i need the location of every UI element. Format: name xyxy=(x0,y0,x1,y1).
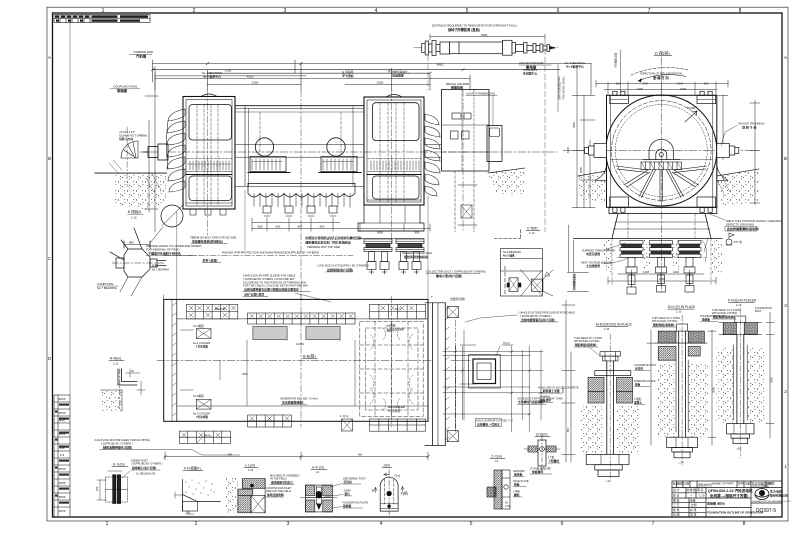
svg-text:3250: 3250 xyxy=(572,122,576,128)
svg-text:现场装配时机加工: 现场装配时机加工 xyxy=(271,481,294,485)
svg-text:冷却器中心: 冷却器中心 xyxy=(523,71,538,76)
svg-text:1: 1 xyxy=(784,464,787,469)
svg-text:电流互感器: 电流互感器 xyxy=(586,252,600,256)
svg-text:更改文件号: 更改文件号 xyxy=(698,483,712,487)
svg-text:集电小室(用户自理): 集电小室(用户自理) xyxy=(435,273,462,278)
svg-text:R-R(m): R-R(m) xyxy=(110,357,121,361)
svg-text:出线电缆预留孔(用户自理): 出线电缆预留孔(用户自理) xyxy=(521,317,555,322)
svg-text:随配焊接(现场焊): 随配焊接(现场焊) xyxy=(575,343,597,347)
svg-text:B4分: B4分 xyxy=(395,307,401,311)
svg-text:辅助油管预留孔(自理): 辅助油管预留孔(自理) xyxy=(103,445,132,450)
svg-text:支架螺栓,-4号枕木: 支架螺栓,-4号枕木 xyxy=(476,422,500,426)
svg-text:xxx: xxx xyxy=(59,446,64,450)
svg-text:1:10: 1:10 xyxy=(736,303,742,307)
svg-text:6: 6 xyxy=(557,8,560,14)
svg-text:随配焊接(现场焊): 随配焊接(现场焊) xyxy=(713,315,735,319)
svg-text:No.8轴承中心: No.8轴承中心 xyxy=(566,64,584,69)
svg-text:2: 2 xyxy=(193,8,196,14)
svg-text:6100: 6100 xyxy=(566,147,570,153)
svg-text:垫片: 垫片 xyxy=(345,492,351,496)
svg-text:600: 600 xyxy=(298,225,303,229)
svg-text:( SUPPLIED BY OTHERS ) COULD B: ( SUPPLIED BY OTHERS ) COULD BE SET xyxy=(243,277,295,281)
svg-text:No.1 COOLER: No.1 COOLER xyxy=(193,341,210,345)
svg-text:图号: 图号 xyxy=(767,482,773,486)
svg-text:No.7轴承中心: No.7轴承中心 xyxy=(203,74,221,79)
svg-text:R3100: R3100 xyxy=(687,106,696,110)
svg-text:L-L(m): L-L(m) xyxy=(245,464,255,468)
svg-text:PIT 坑: PIT 坑 xyxy=(734,240,742,244)
svg-text:A: A xyxy=(48,55,51,60)
svg-text:地基螺栓规格(现场配钻): 地基螺栓规格(现场配钻) xyxy=(192,238,223,243)
svg-text:风扇端部: 风扇端部 xyxy=(392,73,404,78)
svg-text:□24: □24 xyxy=(736,447,741,451)
svg-text:No.7 BEARING: No.7 BEARING xyxy=(152,269,169,272)
svg-text:B: B xyxy=(784,156,787,161)
svg-text:8: 8 xyxy=(743,521,746,527)
svg-text:E(前): E(前) xyxy=(152,264,158,268)
svg-text:支架螺栓与底板随配: 支架螺栓与底板随配 xyxy=(517,400,543,404)
svg-text:No.4相模: No.4相模 xyxy=(193,324,204,328)
svg-text:抽转子所需距离 (直抽): 抽转子所需距离 (直抽) xyxy=(447,27,480,32)
svg-text:№5 COOLER: №5 COOLER xyxy=(388,405,405,409)
svg-text:□ 24: □ 24 xyxy=(678,461,684,465)
svg-text:垫板: 垫板 xyxy=(635,382,641,386)
svg-text:审 定: 审 定 xyxy=(697,488,704,492)
svg-text:P-P(分) IN PLACED: P-P(分) IN PLACED xyxy=(728,298,757,303)
svg-text:2200 HZ: 2200 HZ xyxy=(484,92,495,96)
svg-text:1:10: 1:10 xyxy=(604,327,610,331)
svg-text:4: 4 xyxy=(375,8,378,14)
svg-text:7: 7 xyxy=(652,521,655,527)
svg-text:40: 40 xyxy=(131,369,134,373)
svg-text:COLLECTOR DUCT ( SUPPLIED BY O: COLLECTOR DUCT ( SUPPLIED BY OTHERS) xyxy=(426,270,486,274)
svg-text:D: D xyxy=(48,356,52,361)
svg-text:3: 3 xyxy=(287,521,290,527)
svg-text:C R(#): C R(#) xyxy=(527,227,538,231)
svg-text:2: 2 xyxy=(784,389,787,394)
svg-text:250: 250 xyxy=(95,486,99,491)
svg-text:第 张: 第 张 xyxy=(690,513,697,517)
svg-text:H-K (m): H-K (m) xyxy=(312,466,324,470)
svg-text:1 级配: 1 级配 xyxy=(634,397,642,401)
svg-text:垫板螺母: 垫板螺母 xyxy=(532,470,543,474)
svg-text:K- E(m): K- E(m) xyxy=(113,463,125,467)
svg-text:M-M (DECKS) IN PLACE: M-M (DECKS) IN PLACE xyxy=(596,323,632,327)
svg-text:接地端子(用户自理): 接地端子(用户自理) xyxy=(132,466,156,470)
svg-text:1340: 1340 xyxy=(677,82,683,86)
svg-text:M20螺孔深度: M20螺孔深度 xyxy=(614,52,618,67)
svg-text:共 张: 共 张 xyxy=(690,508,697,512)
svg-text:№6相模: №6相模 xyxy=(386,324,396,328)
svg-text:二期混凝土浇灌: 二期混凝土浇灌 xyxy=(540,389,560,393)
svg-text:No.6相模: No.6相模 xyxy=(193,394,204,398)
svg-text:TERMINAL BOX TOP SIDE: TERMINAL BOX TOP SIDE xyxy=(307,245,340,249)
svg-text:C(m): C(m) xyxy=(394,474,400,478)
svg-text:F-F(视图K): F-F(视图K) xyxy=(184,466,201,471)
svg-text:标记: 标记 xyxy=(59,417,66,422)
svg-text:2000: 2000 xyxy=(712,387,716,393)
svg-text:5号冷却器: 5号冷却器 xyxy=(388,409,400,413)
svg-text:B46: B46 xyxy=(243,372,248,376)
svg-text:B4(7): B4(7) xyxy=(387,329,394,333)
svg-text:1 J(m): 1 J(m) xyxy=(340,414,349,418)
svg-text:DONGFANG ELECTRIC MACHINERY CO: DONGFANG ELECTRIC MACHINERY CO.,LTD xyxy=(752,500,791,503)
svg-text:2: 2 xyxy=(195,521,198,527)
svg-text:DISTANCE REQUIRED TO REMOVE RO: DISTANCE REQUIRED TO REMOVE ROTOR (STRAI… xyxy=(432,24,517,28)
svg-text:No.5 BEARING: No.5 BEARING xyxy=(503,250,521,254)
svg-text:工 艺: 工 艺 xyxy=(673,503,680,507)
svg-text:集电端: 集电端 xyxy=(525,65,537,70)
svg-text:8: 8 xyxy=(739,8,742,14)
svg-text:顶 转 子 用: 顶 转 子 用 xyxy=(742,125,757,130)
svg-text:7900: 7900 xyxy=(481,33,488,37)
svg-text:LIGHT STONE: LIGHT STONE xyxy=(466,92,485,96)
svg-text:C-C(m): C-C(m) xyxy=(491,455,502,459)
svg-text:安装图 (积分): 安装图 (积分) xyxy=(707,501,725,506)
svg-text:主出线套管: 主出线套管 xyxy=(586,264,600,268)
svg-text:刷握组装: 刷握组装 xyxy=(450,85,463,90)
svg-text:J(m): J(m) xyxy=(383,464,390,468)
svg-text:1:10: 1:10 xyxy=(248,468,254,472)
svg-text:B: B xyxy=(48,156,51,161)
svg-text:1900: 1900 xyxy=(680,87,686,91)
svg-text:1340: 1340 xyxy=(642,82,648,86)
svg-text:接地板: 接地板 xyxy=(514,472,523,476)
svg-text:下端盖开孔抽转子用吊孔: 下端盖开孔抽转子用吊孔 xyxy=(148,251,181,256)
svg-text:吊转子所需高度9100: 吊转子所需高度9100 xyxy=(557,76,561,100)
svg-text:(用户自理)-推荐: (用户自理)-推荐 xyxy=(244,291,264,296)
svg-text:1218: 1218 xyxy=(673,270,679,274)
svg-text:3: 3 xyxy=(784,303,787,308)
svg-text:□ 24: □ 24 xyxy=(605,479,611,483)
svg-text:2x 180x20(3x7)6: 2x 180x20(3x7)6 xyxy=(136,472,156,476)
svg-text:吊转子方向: 吊转子方向 xyxy=(119,137,133,141)
svg-text:xxxx: xxxx xyxy=(59,509,66,513)
svg-text:批 准: 批 准 xyxy=(673,508,680,512)
svg-text:x x: x x xyxy=(60,453,65,457)
svg-text:DQ397-5: DQ397-5 xyxy=(756,508,777,514)
svg-text:混凝土: 混凝土 xyxy=(634,401,642,405)
svg-text:随配焊接(现场焊): 随配焊接(现场焊) xyxy=(653,323,675,327)
svg-text:4520: 4520 xyxy=(247,75,254,79)
svg-text:校 对: 校 对 xyxy=(673,494,680,498)
svg-text:No.3 COOLER: No.3 COOLER xyxy=(193,412,210,416)
svg-text:出线罩—(基础尺寸布置): 出线罩—(基础尺寸布置) xyxy=(710,493,749,498)
svg-text:1218: 1218 xyxy=(643,270,649,274)
svg-text:螺栓: 螺栓 xyxy=(514,493,520,497)
svg-text:X(m): X(m) xyxy=(503,341,510,345)
svg-text:2-4HCS DIA 304 PIPE SLEEV FOR: 2-4HCS DIA 304 PIPE SLEEV FOR OIL PIPING xyxy=(95,438,150,442)
svg-text:审 核: 审 核 xyxy=(673,499,680,503)
svg-text:2436: 2436 xyxy=(659,277,665,281)
svg-text:发电机键槽(随配): 发电机键槽(随配) xyxy=(281,401,304,405)
svg-text:1:10: 1:10 xyxy=(699,494,705,498)
svg-text:出线电缆预留孔位置可根据出线盒位置而定: 出线电缆预留孔位置可根据出线盒位置而定 xyxy=(244,287,299,292)
svg-text:重量: 重量 xyxy=(690,499,696,503)
svg-text:WORKING PLATE: WORKING PLATE xyxy=(634,379,656,383)
svg-text:ACCORDING TO THE POSITION OF T: ACCORDING TO THE POSITION OF TERMINAL BO… xyxy=(243,280,307,284)
svg-text:xxxx: xxxx xyxy=(59,481,66,485)
svg-text:L3: L3 xyxy=(495,459,498,463)
svg-text:2260: 2260 xyxy=(377,81,384,85)
svg-text:900: 900 xyxy=(704,82,709,86)
svg-text:6: 6 xyxy=(561,521,564,527)
svg-text:K(视): K(视) xyxy=(401,491,408,496)
svg-text:40: 40 xyxy=(505,501,508,505)
svg-text:密封风挡发电机用: 密封风挡发电机用 xyxy=(403,254,428,259)
svg-text:1:10: 1:10 xyxy=(131,216,137,220)
svg-text:D 视(前): D 视(前) xyxy=(655,50,670,56)
svg-text:7: 7 xyxy=(648,8,651,14)
svg-text:xxxx: xxxx xyxy=(59,397,66,401)
svg-text:xxxx: xxxx xyxy=(59,467,66,471)
svg-text:出线母线(用户自理): 出线母线(用户自理) xyxy=(327,267,353,272)
svg-text:3: 3 xyxy=(284,8,287,14)
svg-text:1:10: 1:10 xyxy=(113,362,119,366)
svg-text:RAILING FOR PROTECTION AND MAI: RAILING FOR PROTECTION AND MAINTENANCE(S… xyxy=(222,251,319,255)
svg-text:比例: 比例 xyxy=(691,503,697,507)
svg-text:2850: 2850 xyxy=(579,167,583,173)
svg-text:设 计: 设 计 xyxy=(673,488,680,492)
svg-text:(供需双方现场配钻铰孔后用铰制孔螺栓连接): (供需双方现场配钻铰孔后用铰制孔螺栓连接) xyxy=(305,235,362,240)
svg-text:2260: 2260 xyxy=(252,81,259,85)
svg-text:3号冷却器: 3号冷却器 xyxy=(196,415,208,419)
svg-text:(螺栓螺母由发电机厂供货 现场配钻): (螺栓螺母由发电机厂供货 现场配钻) xyxy=(305,240,351,245)
svg-text:xxxx: xxxx xyxy=(59,411,66,415)
svg-text:A: A xyxy=(784,55,787,60)
svg-text:1: 1 xyxy=(102,8,105,14)
svg-text:1 WHOLE OUTSIDE PIPE SLEEVE FO: 1 WHOLE OUTSIDE PIPE SLEEVE FOR CABLE xyxy=(518,311,575,315)
svg-text:8M: 8M xyxy=(358,453,363,457)
svg-text:B 视图(#): B 视图(#) xyxy=(128,209,141,214)
svg-text:8M: 8M xyxy=(228,453,233,457)
svg-text:日期: 日期 xyxy=(745,482,751,486)
svg-text:600: 600 xyxy=(258,225,263,229)
svg-text:C: C xyxy=(48,256,52,261)
svg-text:1600: 1600 xyxy=(561,387,565,393)
svg-text:汽机端: 汽机端 xyxy=(136,54,147,59)
svg-text:分区: 分区 xyxy=(684,482,690,486)
svg-text:基础板: 基础板 xyxy=(702,317,710,321)
svg-text:励 磁 方 向: 励 磁 方 向 xyxy=(652,75,668,80)
svg-text:600: 600 xyxy=(320,225,325,229)
svg-text:COLLECTOR END: COLLECTOR END xyxy=(519,61,544,65)
svg-text:4: 4 xyxy=(380,521,383,527)
svg-text:3300: 3300 xyxy=(225,69,232,73)
svg-text:9882: 9882 xyxy=(437,63,444,67)
svg-text:850: 850 xyxy=(566,427,570,432)
svg-text:1:50: 1:50 xyxy=(505,504,511,508)
svg-text:BOLT: BOLT xyxy=(755,309,762,313)
svg-text:标准化: 标准化 xyxy=(687,488,696,492)
svg-text:现场连续角焊: 现场连续角焊 xyxy=(267,493,284,497)
svg-text:Bx4中(8): Bx4中(8) xyxy=(215,307,225,311)
svg-text:900: 900 xyxy=(616,82,621,86)
svg-text:xxxx: xxxx xyxy=(59,495,66,499)
svg-text:DIRECTION OF FIELD ROTATION: DIRECTION OF FIELD ROTATION xyxy=(640,71,682,75)
svg-text:N-N (分) IN PLACE: N-N (分) IN PLACE xyxy=(668,304,695,309)
svg-text:1:10: 1:10 xyxy=(529,231,535,235)
svg-text:xxxx: xxxx xyxy=(59,432,66,436)
svg-text:CONCRETE POST: CONCRETE POST xyxy=(634,363,657,367)
svg-text:1: 1 xyxy=(106,521,109,527)
svg-text:定子中心: 定子中心 xyxy=(341,73,354,78)
svg-text:T: T xyxy=(431,295,433,299)
svg-text:890: 890 xyxy=(129,241,134,245)
svg-text:定位柱: 定位柱 xyxy=(343,480,353,484)
svg-text:股份有限公司: 股份有限公司 xyxy=(770,493,788,498)
svg-text:1800: 1800 xyxy=(770,377,774,383)
svg-text:5: 5 xyxy=(466,8,469,14)
svg-text:1号冷却器: 1号冷却器 xyxy=(196,345,208,349)
svg-text:T形螺栓: T形螺栓 xyxy=(549,459,559,463)
svg-text:COUPLING FACE: COUPLING FACE xyxy=(113,85,137,89)
svg-text:L3: L3 xyxy=(316,470,319,474)
svg-text:1900: 1900 xyxy=(637,87,643,91)
svg-text:B-B(前): B-B(前) xyxy=(303,354,316,359)
svg-text:1:10: 1:10 xyxy=(676,309,682,313)
svg-text:签字: 签字 xyxy=(738,482,744,486)
svg-text:No.7 BEARING: No.7 BEARING xyxy=(97,286,118,290)
svg-text:(TO CRANE HOOK): (TO CRANE HOOK) xyxy=(563,77,566,100)
svg-text:坑内側壁线基准: 坑内側壁线基准 xyxy=(572,273,576,290)
svg-text:5-M4CS DIA 304 PIPE SLEEVE FOR: 5-M4CS DIA 304 PIPE SLEEVE FOR CABLE xyxy=(243,274,296,278)
svg-text:Q-Q(m): Q-Q(m) xyxy=(536,433,548,437)
svg-text:DEFECTS (GROUND): DEFECTS (GROUND) xyxy=(726,223,754,227)
svg-text:此处焊缝需满焊(现场焊): 此处焊缝需满焊(现场焊) xyxy=(727,226,759,231)
svg-text:NAME OF PART: NAME OF PART xyxy=(712,482,734,486)
svg-text:TURBINE END: TURBINE END xyxy=(133,50,154,54)
svg-text:✓: ✓ xyxy=(690,494,692,498)
svg-text:定位柱: 定位柱 xyxy=(634,366,643,370)
svg-text:日 期: 日 期 xyxy=(673,513,680,517)
svg-text:栏杆 (自理): 栏杆 (自理) xyxy=(203,258,218,263)
svg-text:垫板: 垫板 xyxy=(514,482,520,486)
svg-text:基础板: 基础板 xyxy=(342,504,352,508)
svg-text:处数: 处数 xyxy=(678,482,684,486)
svg-text:出线罩(剖视): 出线罩(剖视) xyxy=(450,297,465,301)
svg-text:No.5 轴承: No.5 轴承 xyxy=(503,254,515,258)
svg-text:300: 300 xyxy=(186,512,191,515)
svg-text:QFSN-600-2-22 汽轮发电机: QFSN-600-2-22 汽轮发电机 xyxy=(708,488,753,493)
svg-text:10160: 10160 xyxy=(296,342,304,346)
svg-text:600: 600 xyxy=(276,225,281,229)
svg-text:5: 5 xyxy=(470,521,473,527)
